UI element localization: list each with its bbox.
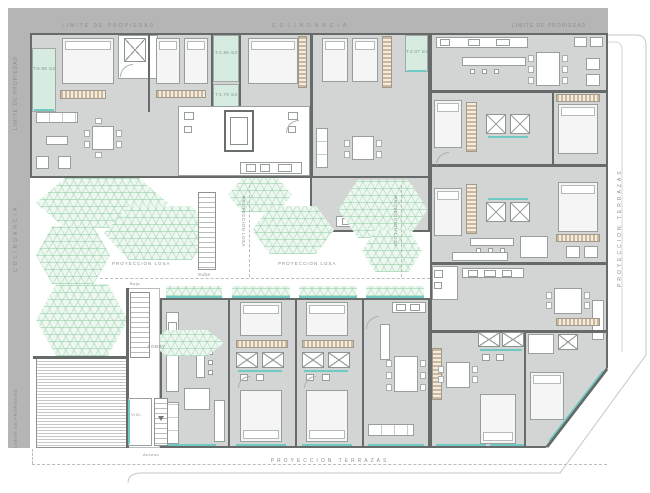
wc-fixture-icon <box>184 112 194 120</box>
dining-table-icon <box>554 288 582 314</box>
chair-icon <box>84 141 90 148</box>
armchair-icon <box>36 156 49 169</box>
label-lobby: LOBBY <box>148 344 166 349</box>
chair-icon <box>386 372 392 379</box>
armchair-icon <box>586 58 600 70</box>
stool-icon <box>208 370 213 375</box>
closet-icon <box>556 234 600 242</box>
chair-icon <box>562 66 568 73</box>
label-limite-left-top: LIMITE DE PROPIEDAD <box>13 46 19 130</box>
sink-icon <box>396 304 406 311</box>
window-vigilancia <box>128 400 130 444</box>
closet-icon <box>466 102 477 152</box>
sofa-icon <box>368 424 414 436</box>
window-south <box>236 444 286 446</box>
bed-icon <box>306 302 348 336</box>
terrace-strip <box>232 286 290 298</box>
shower-icon <box>262 352 284 368</box>
label-proyeccion-terrazas-bottom: PROYECCION TERRAZAS <box>240 458 420 464</box>
armchair-icon <box>586 74 600 86</box>
closet-icon <box>432 348 442 400</box>
cabinet-icon <box>590 37 603 47</box>
terrace-label-center-1: T:4.89 m2 <box>215 50 237 55</box>
wall <box>295 298 297 448</box>
terraza-dashed-line <box>32 449 33 464</box>
kitchen-island-icon <box>380 324 390 360</box>
bathroom-se <box>528 334 554 354</box>
sink-fixture-icon <box>322 374 330 381</box>
wall <box>430 164 608 167</box>
shower-icon <box>558 334 578 350</box>
property-band-top <box>8 8 608 33</box>
wall <box>362 298 364 448</box>
shower-icon <box>236 352 258 368</box>
floor-plan-canvas: LIMITE DE PROPIEDAD COLINDANCIA LIMITE D… <box>0 0 650 493</box>
kitchen-island-icon <box>470 238 514 246</box>
label-colindancia-top: COLINDANCIA <box>272 23 350 29</box>
bed-icon <box>558 182 598 232</box>
armchair-icon <box>584 246 598 258</box>
stove-icon <box>484 270 496 277</box>
chair-icon <box>344 140 350 147</box>
chair-icon <box>420 384 426 391</box>
sink-icon <box>168 322 177 331</box>
window-terrace-nw <box>34 109 54 111</box>
bed-icon <box>156 38 180 84</box>
entry-stair <box>154 398 168 446</box>
sofa-icon <box>316 128 328 168</box>
wc-fixture-icon <box>434 270 443 278</box>
shower-icon <box>486 202 506 222</box>
closet-icon <box>556 318 600 326</box>
closet-icon <box>60 90 106 99</box>
wc-fixture-icon <box>482 354 490 361</box>
label-limite-top-left: LIMITE DE PROPIEDAD <box>62 23 155 29</box>
bed-icon <box>184 38 208 84</box>
chair-icon <box>584 292 590 299</box>
chair-icon <box>528 66 534 73</box>
sink-fixture-icon <box>256 374 264 381</box>
chair-icon <box>376 151 382 158</box>
chair-icon <box>546 292 552 299</box>
terrace-label-ne: T:4.07 m2 <box>406 49 428 54</box>
label-baja: Baja <box>130 281 140 286</box>
dining-table-icon <box>184 388 210 410</box>
terrace-strip <box>166 286 222 298</box>
label-proyeccion-terrazas-right: PROYECCION TERRAZAS <box>617 112 623 287</box>
wall <box>430 262 608 265</box>
bed-icon <box>434 188 462 236</box>
label-limite-top-right: LIMITE DE PROPIEDAD <box>512 23 586 29</box>
chair-icon <box>116 130 122 137</box>
bed-icon <box>240 390 282 442</box>
chair-icon <box>438 366 444 373</box>
chair-icon <box>438 376 444 383</box>
dining-table-icon <box>536 52 560 86</box>
stool-icon <box>470 69 475 74</box>
terraza-dashed-line <box>32 464 607 465</box>
window-south <box>490 444 524 446</box>
wall <box>148 33 150 112</box>
terrace-room-center-1 <box>213 35 239 82</box>
chair-icon <box>472 366 478 373</box>
label-proyeccion-losa-v2: PROYECCION LOSA <box>393 196 398 272</box>
wall <box>33 356 127 359</box>
sink-icon <box>496 39 510 46</box>
sink-fixture-icon <box>496 354 504 361</box>
label-vigilancia: VIGI. <box>131 412 143 417</box>
chair-icon <box>562 77 568 84</box>
chair-icon <box>472 376 478 383</box>
shower-icon <box>510 114 530 134</box>
chair-icon <box>420 372 426 379</box>
dining-table-icon <box>394 356 418 392</box>
closet-icon <box>236 340 288 348</box>
property-band-left <box>8 8 30 448</box>
closet-icon <box>382 36 392 88</box>
chair-icon <box>84 130 90 137</box>
sofa-icon <box>36 112 78 123</box>
fridge-icon <box>278 164 292 172</box>
kitchen-island-icon <box>462 57 526 66</box>
courtyard-stair <box>198 192 216 270</box>
chair-icon <box>376 140 382 147</box>
terrace-strip <box>366 286 424 298</box>
stove-icon <box>468 39 480 46</box>
stove-icon <box>410 304 420 311</box>
tv-cabinet-icon <box>214 400 225 442</box>
terrace-strip <box>299 286 357 298</box>
chair-icon <box>528 55 534 62</box>
dining-table-icon <box>352 136 374 160</box>
elevator-cab <box>230 117 248 145</box>
vigilancia-room <box>128 398 152 446</box>
wall <box>310 33 313 178</box>
garage-ramp <box>36 358 127 448</box>
stool-icon <box>482 69 487 74</box>
kitchen-counter-icon <box>452 252 508 261</box>
garden-hatch <box>36 284 128 356</box>
garden-hatch <box>36 226 110 284</box>
window-bath <box>488 198 528 200</box>
fridge-icon <box>502 270 512 277</box>
terrace-room-nw <box>32 48 56 112</box>
chair-icon <box>95 118 102 124</box>
label-sube: Sube <box>198 272 211 277</box>
bed-icon <box>306 390 348 442</box>
closet-icon <box>298 36 307 88</box>
sink-icon <box>468 270 478 277</box>
dining-table-icon <box>446 362 470 388</box>
chair-icon <box>546 302 552 309</box>
dining-table-icon <box>92 126 114 150</box>
losa-projection-line <box>100 278 430 279</box>
wall <box>524 330 526 448</box>
shower-icon <box>328 352 350 368</box>
chair-icon <box>344 151 350 158</box>
label-acceso: Acceso <box>143 452 159 457</box>
label-proyeccion-losa-h1: PROYECCION LOSA <box>112 261 171 266</box>
chair-icon <box>116 141 122 148</box>
shower-icon <box>478 332 500 347</box>
shower-icon <box>124 38 146 62</box>
stool-icon <box>494 69 499 74</box>
bed-icon <box>352 38 378 82</box>
sink-fixture-icon <box>434 282 442 289</box>
window-bath <box>238 370 282 372</box>
window-south <box>436 444 486 446</box>
closet-icon <box>466 184 477 234</box>
chair-icon <box>386 360 392 367</box>
dining-table-icon <box>520 236 548 258</box>
wall <box>552 90 554 166</box>
window-south <box>166 444 216 446</box>
chair-icon <box>420 360 426 367</box>
stove-icon <box>246 164 256 172</box>
fridge-icon <box>440 39 450 46</box>
terrace-label-center-2: T:4.79 m2 <box>215 92 237 97</box>
window-south <box>302 444 352 446</box>
window-bath <box>480 349 522 351</box>
coffee-table-icon <box>46 136 68 145</box>
wall <box>228 298 230 448</box>
chair-icon <box>95 152 102 158</box>
stair-arrow-icon <box>158 416 164 421</box>
label-colindancia-left: COLINDANCIA <box>13 188 19 272</box>
window-bath <box>304 370 348 372</box>
chair-icon <box>562 55 568 62</box>
closet-icon <box>156 90 206 98</box>
armchair-icon <box>58 156 71 169</box>
bed-icon <box>558 104 598 154</box>
sink-icon <box>260 164 270 172</box>
wall <box>430 90 608 93</box>
shower-icon <box>502 332 524 347</box>
losa-projection-line <box>249 185 250 277</box>
shower-icon <box>510 202 530 222</box>
closet-icon <box>302 340 354 348</box>
wc-fixture-icon <box>288 112 298 120</box>
closet-icon <box>556 94 600 102</box>
chair-icon <box>386 384 392 391</box>
bed-icon <box>480 394 516 444</box>
bed-icon <box>240 302 282 336</box>
armchair-icon <box>566 246 580 258</box>
bed-icon <box>248 38 298 84</box>
bed-icon <box>322 38 348 82</box>
lobby-stair-down <box>130 292 150 358</box>
label-proyeccion-losa-v1: PROYECCION LOSA <box>241 196 246 272</box>
bed-icon <box>530 372 564 420</box>
label-limite-left-bottom: LIMITE DE PROPIEDAD <box>13 392 18 448</box>
wall <box>239 33 241 112</box>
losa-projection-line <box>401 185 402 277</box>
sink-fixture-icon <box>184 126 192 133</box>
stool-icon <box>208 360 213 365</box>
shower-icon <box>302 352 324 368</box>
window-bath <box>488 136 528 138</box>
window-terrace-ne <box>407 70 426 72</box>
window-south <box>368 444 424 446</box>
label-proyeccion-losa-h2: PROYECCION LOSA <box>278 261 337 266</box>
bed-icon <box>434 100 462 148</box>
cabinet-icon <box>574 37 587 47</box>
bed-icon <box>62 38 114 84</box>
chair-icon <box>528 77 534 84</box>
chair-icon <box>584 302 590 309</box>
shower-icon <box>486 114 506 134</box>
terrace-label-nw: T:6.89 m2 <box>33 66 55 71</box>
